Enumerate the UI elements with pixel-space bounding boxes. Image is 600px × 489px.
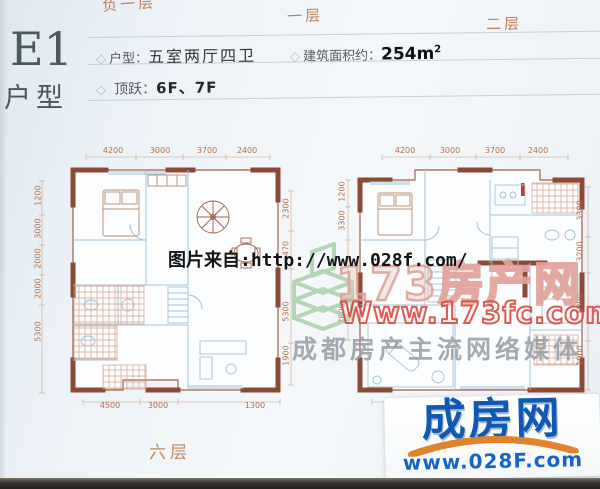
layout-label: 户型： bbox=[109, 51, 148, 66]
divider bbox=[88, 31, 600, 38]
duplex-label: 顶跃： bbox=[114, 81, 156, 98]
dim-label: 4200 bbox=[388, 146, 422, 155]
dim-label: 4500 bbox=[93, 401, 127, 410]
diamond-bullet-icon: ◇ bbox=[290, 50, 300, 65]
floor-plan-left-drawing bbox=[28, 145, 308, 420]
dim-label: 3300 bbox=[338, 204, 347, 238]
duplex-value: 6F、7F bbox=[156, 79, 218, 98]
dim-label: 4200 bbox=[96, 146, 130, 155]
layout-value: 五室两厅四卫 bbox=[148, 46, 256, 66]
plan-code: E1 bbox=[10, 26, 73, 72]
dim-label: 3300 bbox=[576, 194, 585, 228]
dim-label: 2400 bbox=[521, 146, 555, 155]
floor-plan-left: 4200 3000 3700 2400 1200 3000 2000 2000 … bbox=[28, 145, 308, 420]
plan-code-label: 户型 bbox=[4, 76, 68, 115]
scan-edge-bar bbox=[0, 478, 600, 489]
dim-label: 3000 bbox=[34, 212, 43, 246]
watermark-source-url: 图片来自:http://www.028f.com/ bbox=[168, 246, 468, 272]
scanned-floorplan-page: 负一层 一层 二层 E1 户型 ◇户型：五室两厅四卫◇建筑面积约：254m2 ◇… bbox=[0, 0, 600, 489]
dim-label: 2000 bbox=[34, 272, 43, 306]
dim-label: 2000 bbox=[34, 242, 43, 276]
area-superscript: 2 bbox=[434, 44, 441, 55]
dim-label: 2300 bbox=[282, 192, 291, 226]
diamond-bullet-icon: ◇ bbox=[96, 52, 106, 67]
dim-label: 3700 bbox=[190, 146, 224, 155]
tab-first-floor: 一层 bbox=[287, 4, 324, 26]
dim-label: 1300 bbox=[238, 401, 272, 410]
site-logo-url: www.028F.com bbox=[403, 447, 584, 475]
diamond-bullet-icon: ◇ bbox=[96, 83, 106, 98]
dim-label: 5300 bbox=[34, 315, 43, 349]
watermark-brand-url: Www.173fc.com bbox=[340, 296, 600, 330]
site-logo-card: 成房网 www.028F.com bbox=[384, 394, 600, 480]
floor-label-sixth: 六层 bbox=[138, 438, 202, 463]
watermark-brand-slogan: 成都房产主流网络媒体 bbox=[292, 330, 582, 366]
dim-label: 3000 bbox=[143, 146, 177, 155]
area-value: 254m2 bbox=[381, 44, 441, 65]
dim-label: 2400 bbox=[230, 146, 264, 155]
dim-label: 3000 bbox=[141, 401, 175, 410]
dim-label: 1200 bbox=[34, 179, 43, 213]
area-label: 建筑面积约： bbox=[303, 49, 381, 65]
dim-label: 3700 bbox=[478, 146, 512, 155]
dim-label: 3000 bbox=[433, 146, 467, 155]
tab-basement-floor: 负一层 bbox=[101, 0, 156, 16]
duplex-info-row: ◇ 顶跃：6F、7F bbox=[96, 77, 218, 99]
unit-info-row: ◇户型：五室两厅四卫◇建筑面积约：254m2 bbox=[96, 40, 441, 68]
dim-label: 1900 bbox=[282, 339, 291, 373]
